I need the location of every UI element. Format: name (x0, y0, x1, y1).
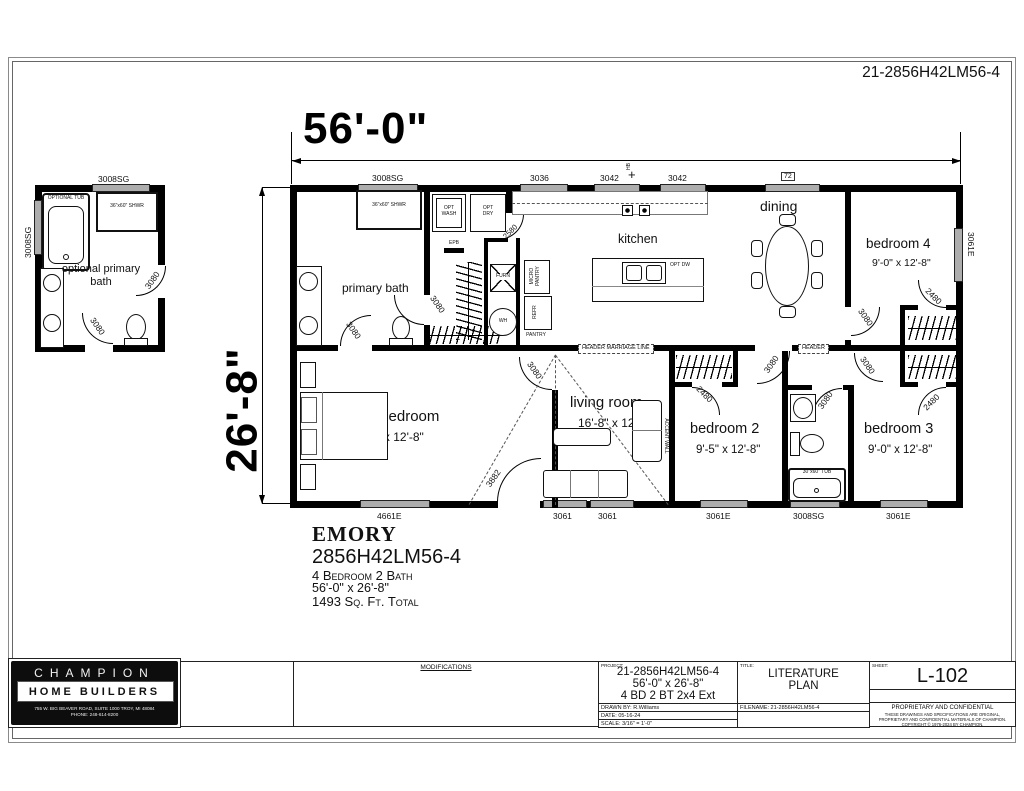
dining-chair (751, 240, 763, 257)
dim-arrow-left (292, 158, 301, 164)
room-dims-bedroom3: 9'-0" x 12'-8" (868, 444, 932, 456)
dim-ext (291, 132, 292, 184)
upper-cabinet-line (512, 203, 708, 204)
dishwasher-label: OPT DW (669, 263, 691, 269)
wall (848, 385, 854, 508)
furnace-label: FURN (492, 274, 514, 280)
island-line (592, 286, 704, 287)
window-label-72: 72 (781, 172, 795, 181)
window-72 (765, 184, 820, 192)
window-label: 3042 (668, 174, 687, 183)
tub-drain (63, 254, 69, 260)
coffee-table (553, 428, 611, 446)
logo-address: 755 W. BIG BEAVER ROAD, SUITE 1000 TROY,… (11, 706, 178, 711)
sink (299, 316, 318, 335)
header-label: HEADER (798, 344, 829, 354)
room-label-primary-bath: primary bath (342, 281, 409, 295)
shower (356, 190, 422, 230)
wall (845, 340, 851, 351)
sofa (543, 470, 628, 498)
nightstand (300, 362, 316, 388)
sheet-inner-border (12, 61, 1012, 739)
dim-line (262, 187, 263, 504)
dining-chair (811, 272, 823, 289)
window-label: 3008SG (372, 174, 403, 183)
project-size: 56'-0" x 26'-8" (598, 678, 738, 690)
shower-label: 36"x60" SHWR (103, 204, 151, 210)
window-label: 3008SG (793, 512, 824, 521)
scale: SCALE: 3/16" = 1'-0" (601, 721, 652, 727)
window-3061e (700, 500, 748, 508)
title-line2: PLAN (737, 680, 870, 692)
toilet (126, 314, 146, 340)
range-burner (622, 205, 633, 216)
wall (672, 382, 692, 387)
project-number: 21-2856H42LM56-4 (598, 666, 738, 678)
dining-table (765, 226, 809, 306)
sofa-line (570, 470, 571, 498)
blueprint-sheet: 21-2856H42LM56-4 56'-0" 26'-8" 3008SG 30… (0, 0, 1024, 791)
wall (516, 238, 520, 346)
accent-wall-label: ACCENT WALL (663, 408, 669, 464)
refrigerator-label: REFR (533, 301, 539, 323)
armchair-line (632, 430, 662, 431)
plan-name: EMORY (312, 522, 397, 547)
wall (946, 382, 963, 387)
modifications-label: MODIFICATIONS (293, 664, 599, 671)
sink (793, 397, 813, 419)
wall (484, 238, 488, 346)
title-empty-cell (737, 711, 870, 728)
epb-label: EPB (447, 241, 461, 247)
window-4661e (360, 500, 430, 508)
height-dimension: 26'-8" (218, 328, 268, 493)
sheet-divider (869, 702, 1016, 703)
dim-arrow-up (259, 187, 265, 196)
bed-line (322, 392, 323, 460)
room-label-dining: dining (760, 198, 797, 214)
water-heater-label: WH (492, 319, 514, 325)
window-label: 3061E (886, 512, 911, 521)
door-opening (498, 501, 540, 508)
wall (722, 382, 738, 387)
window-3061 (543, 500, 587, 508)
wall (845, 185, 851, 307)
room-label-bedroom3: bedroom 3 (864, 421, 933, 437)
sink-bowl (626, 265, 642, 281)
window-label: 3036 (530, 174, 549, 183)
window-3008sg (92, 184, 150, 192)
micro-pantry-label: MICRO PANTRY (530, 261, 541, 291)
window-label: 3061E (967, 232, 976, 257)
plan-model: 2856H42LM56-4 (312, 546, 461, 569)
optional-tub-label: OPTIONAL TUB (46, 196, 86, 202)
dim-line (292, 160, 961, 161)
closet-rod-line (676, 367, 732, 368)
wall (158, 185, 165, 265)
toilet-tank (124, 338, 148, 346)
window-label: 3008SG (24, 227, 33, 258)
window-label: 3061E (706, 512, 731, 521)
window-3008sg (34, 200, 42, 255)
toilet (392, 316, 410, 340)
sheet-number: L-102 (869, 665, 1016, 688)
copyright-line: COPYRIGHT © 1976-2024 BY CHAMPION. (869, 722, 1016, 727)
toilet-tank (389, 338, 413, 346)
dining-chair (779, 306, 796, 318)
window-label: 4661E (377, 512, 402, 521)
closet-rod-line (427, 335, 503, 336)
width-dimension: 56'-0" (303, 104, 428, 154)
range-burner (639, 205, 650, 216)
wall (843, 385, 854, 390)
room-label-bedroom4: bedroom 4 (866, 236, 931, 251)
tub-label: 30"x60" TUB (793, 470, 841, 476)
pantry-label: PANTRY (521, 333, 551, 339)
wall (158, 298, 165, 352)
dim-ext (262, 503, 292, 504)
wall (788, 385, 812, 390)
washer-label: OPT WASH (438, 206, 460, 217)
tub-drain (814, 488, 819, 493)
hb-icon: + (628, 168, 636, 181)
dim-ext (960, 132, 961, 184)
sofa-line (598, 470, 599, 498)
shower-label: 36"x60" SHWR (364, 203, 414, 209)
window-3061e (880, 500, 928, 508)
dim-ext (262, 187, 292, 188)
sheet-divider (869, 689, 1016, 690)
sink (299, 272, 318, 291)
project-spec: 4 BD 2 BT 2x4 Ext (598, 690, 738, 702)
window-label: 3042 (600, 174, 619, 183)
plan-size: 56'-0" x 26'-8" (312, 581, 389, 595)
dining-chair (779, 214, 796, 226)
armchair (632, 400, 662, 462)
epb-panel (444, 248, 464, 253)
closet-rod-line (908, 328, 956, 329)
room-label-optional-bath: optional primary bath (55, 263, 147, 288)
window-3061 (590, 500, 634, 508)
nightstand (300, 464, 316, 490)
shower (96, 192, 158, 232)
room-label-kitchen: kitchen (618, 232, 658, 246)
window-label: 3061 (553, 512, 572, 521)
wall (946, 305, 963, 310)
proprietary-title: PROPRIETARY AND CONFIDENTIAL (869, 705, 1016, 711)
title-line1: LITERATURE (737, 668, 870, 680)
dining-chair (751, 272, 763, 289)
window-3061e (954, 228, 963, 282)
wall (900, 305, 905, 351)
sink (43, 314, 61, 332)
plan-area: 1493 Sq. Ft. Total (312, 594, 419, 609)
wall (424, 185, 430, 295)
logo-homebuilders-text: HOME BUILDERS (17, 686, 172, 698)
dryer-label: OPT DRY (477, 206, 499, 217)
sink-bowl (646, 265, 662, 281)
drawing-number: 21-2856H42LM56-4 (700, 64, 1000, 82)
wall (669, 351, 675, 508)
toilet-tank (790, 432, 800, 456)
room-dims-bedroom4: 9'-0" x 12'-8" (872, 257, 931, 269)
wall (900, 382, 918, 387)
wall (900, 305, 918, 310)
header-marriage-line-label: HEADER MARRIAGE LINE (578, 344, 654, 354)
room-dims-bedroom2: 9'-5" x 12'-8" (696, 444, 760, 456)
closet-rod-line (908, 367, 956, 368)
logo-phone: PHONE: 248-614-8200 (11, 712, 178, 717)
room-label-bedroom2: bedroom 2 (690, 421, 759, 437)
logo-champion-text: CHAMPION (11, 666, 178, 680)
bed-pillow (302, 430, 316, 454)
window-label: 3061 (598, 512, 617, 521)
window-label: 3008SG (98, 175, 129, 184)
bed-pillow (302, 398, 316, 422)
dining-chair (811, 240, 823, 257)
titleblock-empty-panel (180, 661, 294, 727)
toilet (800, 434, 824, 453)
